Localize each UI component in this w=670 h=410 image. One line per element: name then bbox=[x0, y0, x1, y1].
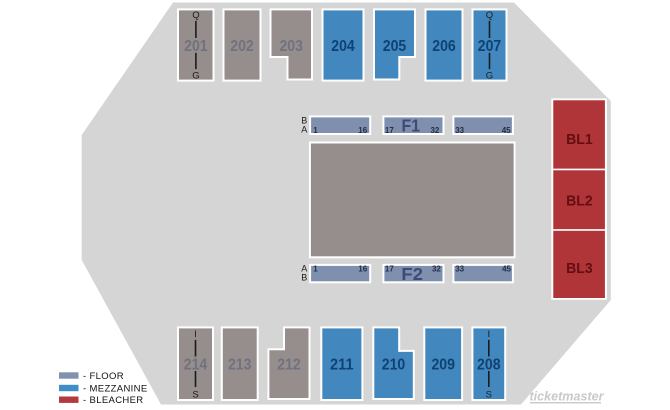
svg-text:16: 16 bbox=[358, 126, 367, 135]
svg-text:1: 1 bbox=[313, 126, 318, 135]
svg-text:G: G bbox=[486, 70, 493, 81]
svg-text:33: 33 bbox=[455, 265, 464, 274]
svg-text:F2: F2 bbox=[401, 264, 423, 284]
svg-text:32: 32 bbox=[432, 265, 441, 274]
svg-text:210: 210 bbox=[382, 356, 406, 373]
svg-text:1: 1 bbox=[313, 265, 318, 274]
svg-text:- BLEACHER: - BLEACHER bbox=[83, 395, 144, 406]
svg-text:211: 211 bbox=[330, 356, 354, 373]
svg-text:B: B bbox=[301, 272, 307, 282]
svg-text:Q: Q bbox=[486, 10, 493, 21]
svg-text:BL3: BL3 bbox=[566, 260, 593, 277]
svg-text:BL1: BL1 bbox=[566, 131, 593, 148]
svg-text:- FLOOR: - FLOOR bbox=[83, 371, 124, 382]
svg-text:BL2: BL2 bbox=[566, 192, 593, 209]
svg-text:- MEZZANINE: - MEZZANINE bbox=[83, 383, 148, 394]
svg-text:208: 208 bbox=[477, 356, 501, 373]
svg-text:214: 214 bbox=[184, 356, 208, 373]
svg-text:A: A bbox=[301, 125, 307, 135]
svg-text:204: 204 bbox=[331, 38, 355, 55]
svg-text:205: 205 bbox=[383, 38, 407, 55]
svg-text:32: 32 bbox=[430, 126, 439, 135]
svg-text:ticketmaster: ticketmaster bbox=[530, 389, 605, 404]
svg-text:17: 17 bbox=[385, 126, 394, 135]
svg-text:213: 213 bbox=[228, 356, 252, 373]
svg-text:33: 33 bbox=[455, 126, 464, 135]
svg-text:G: G bbox=[192, 70, 199, 81]
svg-text:16: 16 bbox=[358, 265, 367, 274]
svg-text:45: 45 bbox=[502, 126, 511, 135]
svg-text:S: S bbox=[192, 390, 198, 401]
svg-text:201: 201 bbox=[184, 38, 208, 55]
svg-text:S: S bbox=[486, 390, 492, 401]
svg-text:202: 202 bbox=[230, 38, 254, 55]
svg-text:F1: F1 bbox=[402, 115, 421, 135]
svg-text:206: 206 bbox=[432, 38, 456, 55]
svg-text:I: I bbox=[194, 329, 197, 340]
svg-text:209: 209 bbox=[431, 356, 455, 373]
svg-text:17: 17 bbox=[385, 265, 394, 274]
svg-text:207: 207 bbox=[478, 38, 502, 55]
svg-text:Q: Q bbox=[192, 10, 199, 21]
svg-text:I: I bbox=[487, 329, 490, 340]
svg-text:212: 212 bbox=[277, 356, 301, 373]
svg-text:45: 45 bbox=[502, 265, 511, 274]
svg-text:203: 203 bbox=[279, 38, 303, 55]
